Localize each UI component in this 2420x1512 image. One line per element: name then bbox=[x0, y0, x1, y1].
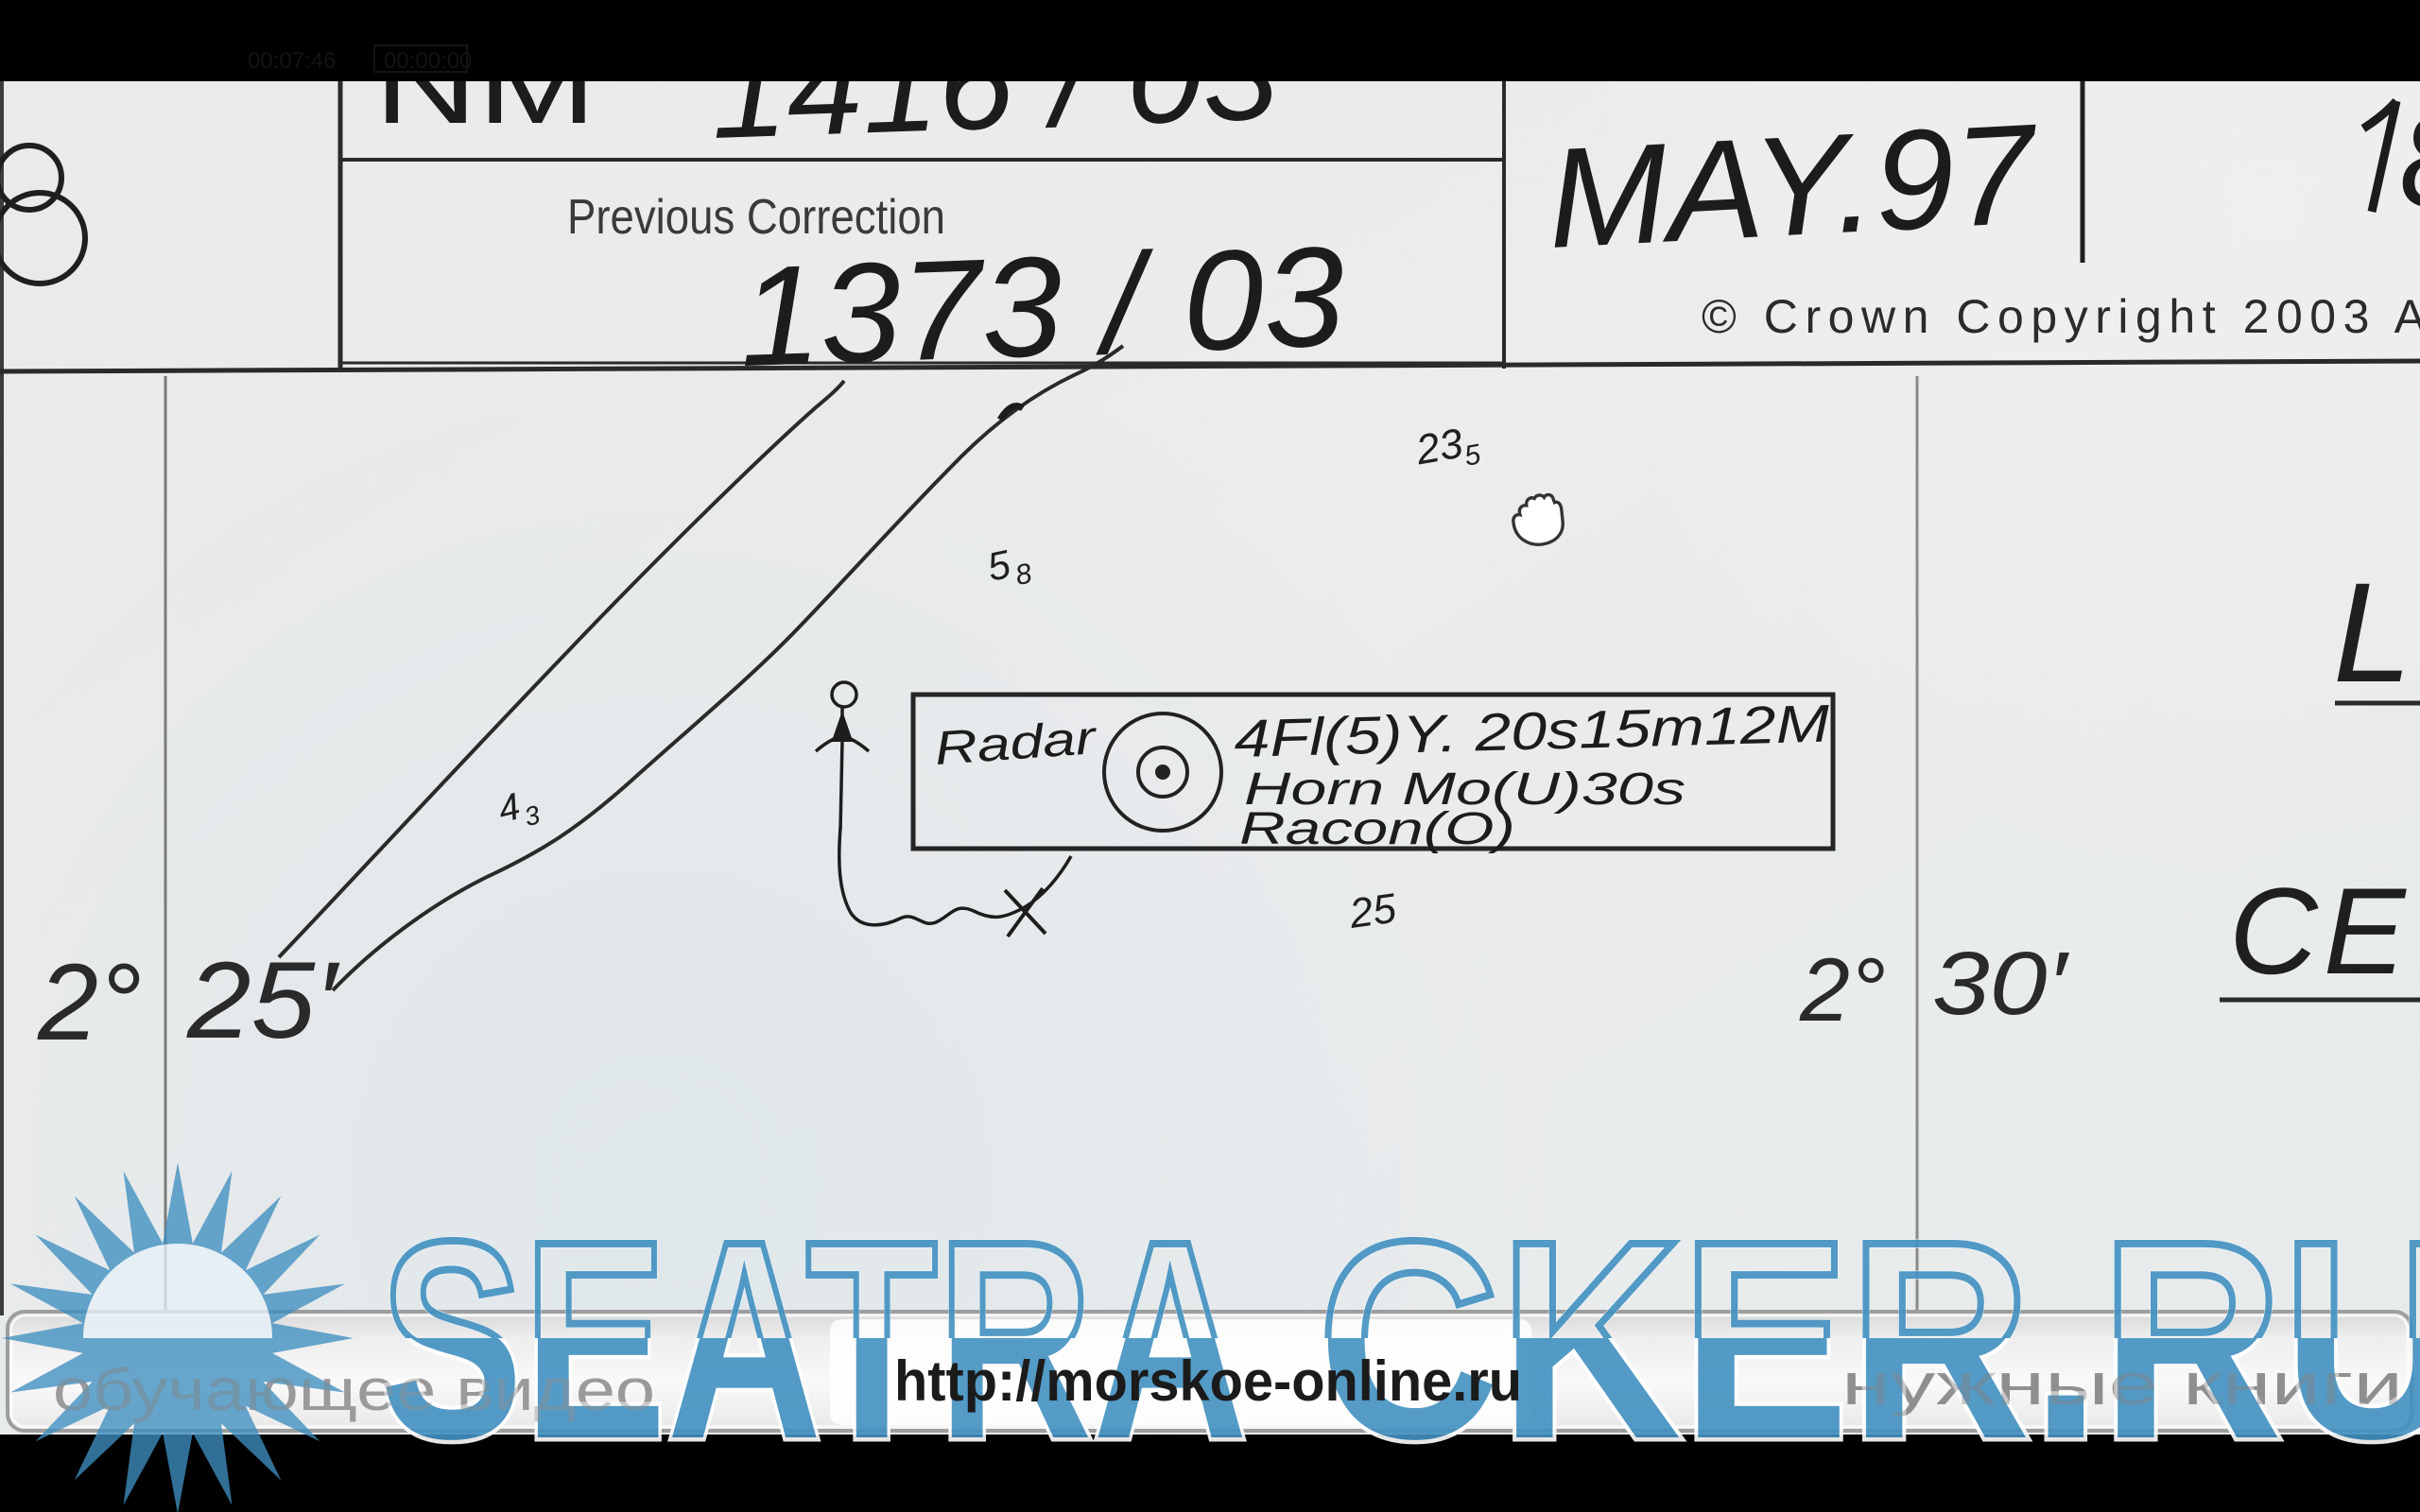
svg-text:25: 25 bbox=[1346, 885, 1400, 937]
svg-text:2°: 2° bbox=[1799, 940, 1886, 1040]
svg-text:2°: 2° bbox=[37, 942, 142, 1063]
svg-text:http://morskoe-online.ru: http://morskoe-online.ru bbox=[894, 1349, 1522, 1413]
svg-text:00:00:00: 00:00:00 bbox=[384, 48, 472, 74]
svg-text:нужные книги: нужные книги bbox=[1841, 1352, 2403, 1417]
svg-text:00:07:46: 00:07:46 bbox=[248, 48, 336, 74]
svg-text:30′: 30′ bbox=[1932, 934, 2070, 1034]
svg-text:Racon(O): Racon(O) bbox=[1239, 804, 1515, 854]
svg-text:обучающее видео: обучающее видео bbox=[53, 1358, 655, 1423]
svg-text:CE: CE bbox=[2229, 862, 2411, 1000]
svg-text:8: 8 bbox=[2399, 86, 2420, 234]
svg-text:23: 23 bbox=[1411, 420, 1466, 473]
svg-text:25′: 25′ bbox=[186, 940, 340, 1061]
svg-text:L: L bbox=[2333, 553, 2411, 712]
svg-text:MAY.97: MAY.97 bbox=[1544, 94, 2044, 278]
